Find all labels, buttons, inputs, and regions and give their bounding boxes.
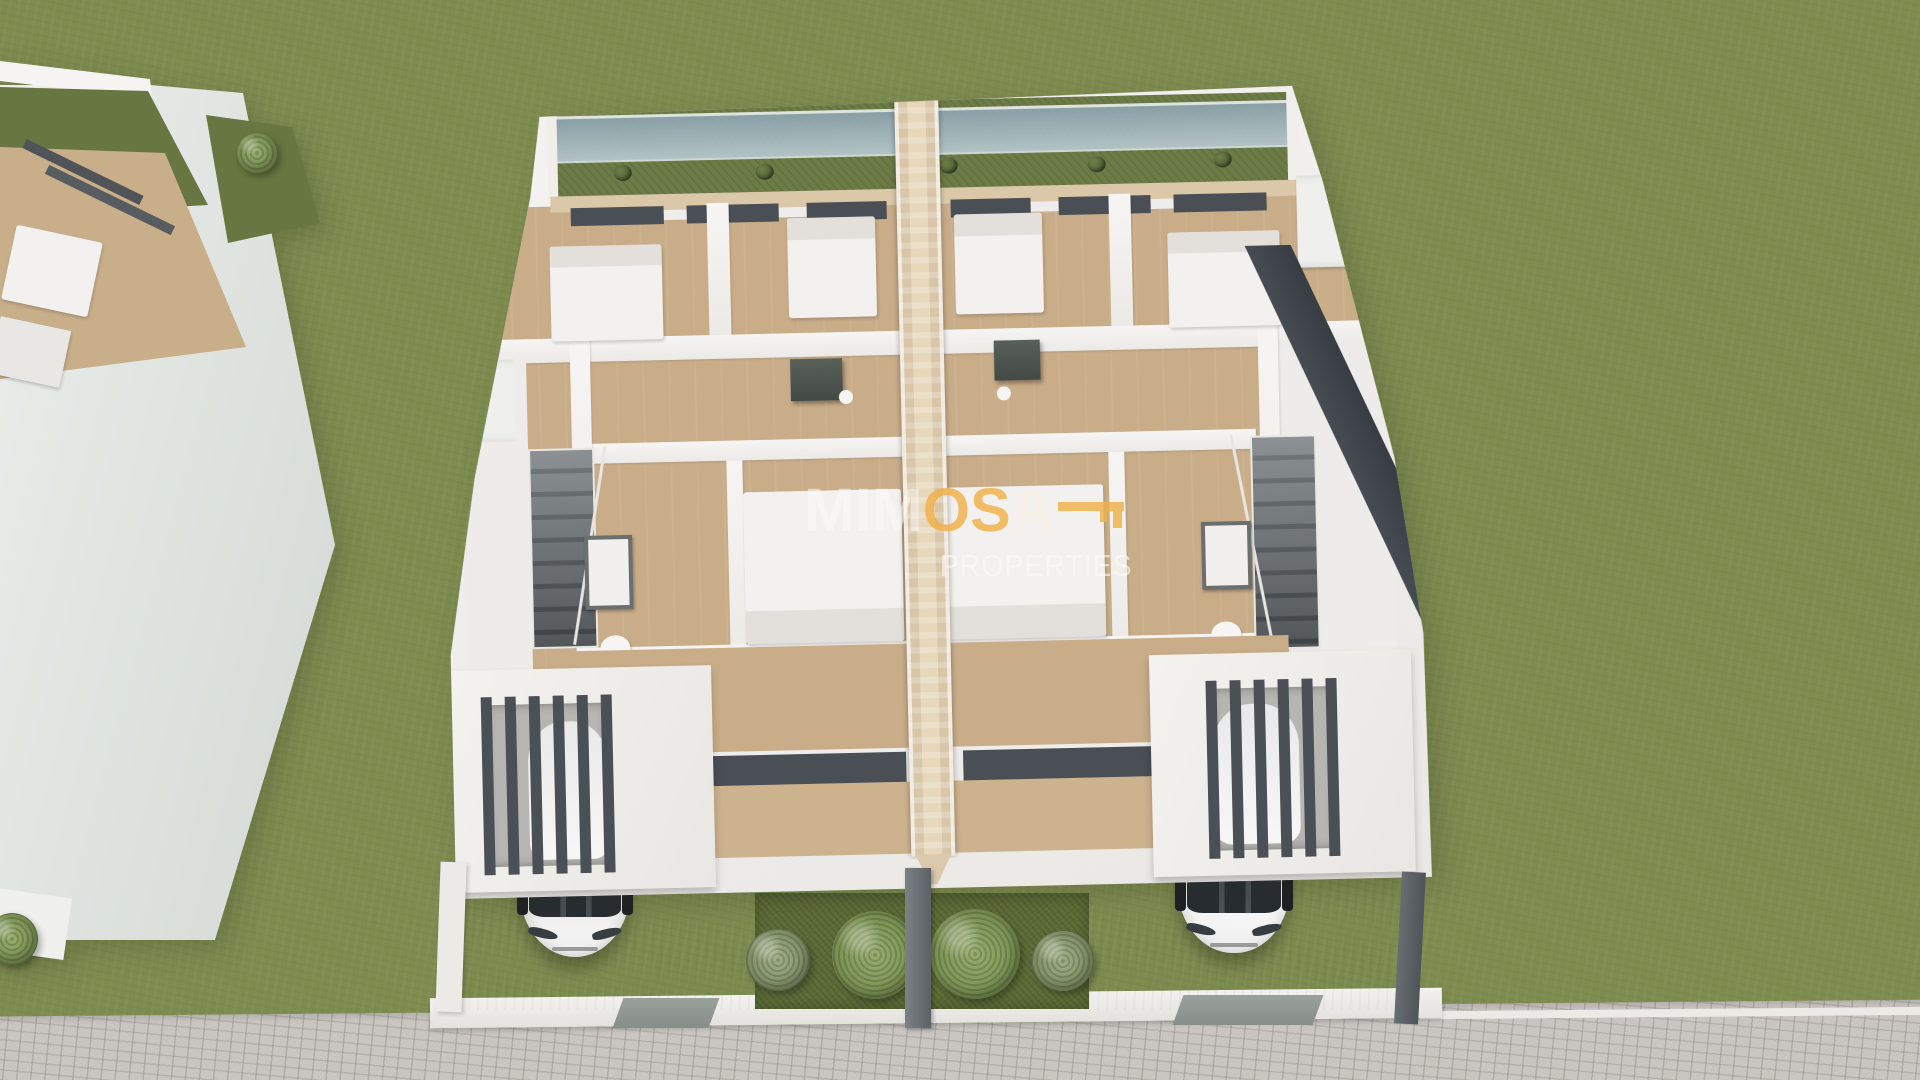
brand-text-cream: A xyxy=(1011,480,1055,541)
aerial-render-scene: MIMOSA PROPERTIES xyxy=(0,0,1920,1080)
car-grille xyxy=(1210,943,1258,947)
hedge-shrub xyxy=(614,165,632,181)
interior-wall xyxy=(706,203,731,335)
brand-text-orange: OS xyxy=(923,480,1011,541)
hedge-shrub xyxy=(1213,151,1231,167)
carport-pergola-slats xyxy=(481,694,617,875)
hedge-shrub xyxy=(1088,156,1106,172)
center-divider-post xyxy=(905,868,931,1028)
window-frame xyxy=(571,206,664,226)
sidewalk-crossing-right xyxy=(1173,995,1324,1025)
interior-wall xyxy=(1108,193,1133,325)
shrub xyxy=(1032,931,1094,991)
hedge-shrub xyxy=(756,164,774,180)
wardrobe xyxy=(448,360,516,443)
bedroom-bed xyxy=(549,244,663,342)
staircase-right xyxy=(1250,434,1321,649)
carport-opening xyxy=(1212,686,1338,851)
window-frame xyxy=(1173,192,1266,212)
neighbor-building xyxy=(0,55,360,1015)
shrub xyxy=(746,929,810,991)
dresser xyxy=(994,340,1041,381)
watermark: MIMOSA PROPERTIES xyxy=(804,480,1134,584)
carport-roof-right xyxy=(1149,649,1416,877)
carport-roof-left xyxy=(449,665,716,893)
car-grille xyxy=(552,947,598,951)
dresser xyxy=(790,358,843,401)
brand-subtitle: PROPERTIES xyxy=(940,548,1134,584)
bathroom-vanity xyxy=(1201,521,1253,590)
balustrade-post xyxy=(1286,92,1298,182)
brand-text-white: MIM xyxy=(804,480,923,541)
bathroom-vanity xyxy=(584,535,634,610)
window-sill xyxy=(779,207,807,218)
window-sill xyxy=(1150,199,1173,210)
balustrade-post xyxy=(546,108,558,198)
key-icon xyxy=(1058,480,1124,532)
neighbor-shrub xyxy=(236,133,278,173)
carport-pergola-slats xyxy=(1205,678,1343,859)
bedroom-bed xyxy=(954,213,1044,315)
window-sill xyxy=(664,210,687,221)
brand-wordmark: MIMOSA xyxy=(804,480,1134,541)
shrub xyxy=(930,909,1020,999)
bedroom-bed xyxy=(787,216,877,318)
window-frame xyxy=(1058,195,1150,215)
carport-opening xyxy=(485,703,611,868)
wardrobe xyxy=(1296,174,1384,268)
left-boundary-wall xyxy=(435,862,466,1013)
window-frame xyxy=(687,203,779,223)
hedge-shrub xyxy=(940,157,958,173)
window-sill xyxy=(1031,201,1059,212)
sidewalk-crossing-left xyxy=(613,998,720,1028)
